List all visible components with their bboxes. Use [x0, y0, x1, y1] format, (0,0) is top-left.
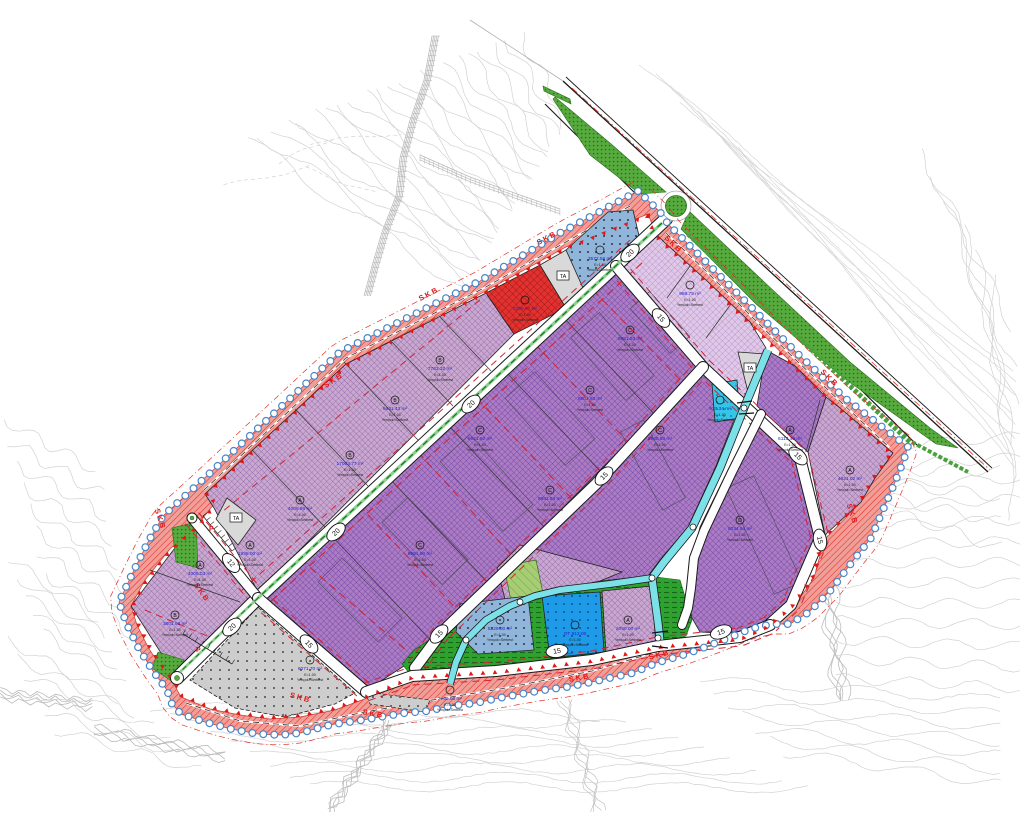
svg-text:E=1.00: E=1.00: [734, 533, 746, 537]
svg-text:2090.00 m²: 2090.00 m²: [616, 626, 641, 632]
svg-text:5948.50 m²: 5948.50 m²: [648, 436, 673, 442]
svg-text:TA: TA: [747, 366, 754, 372]
svg-text:E=1.00: E=1.00: [624, 343, 636, 347]
svg-text:9801.93 m²: 9801.93 m²: [578, 396, 603, 402]
svg-text:Yençok=Serbest: Yençok=Serbest: [647, 448, 673, 452]
svg-text:E=1.00: E=1.00: [474, 443, 486, 447]
svg-text:E=1.00: E=1.00: [244, 558, 256, 562]
svg-text:Yençok=Serbest: Yençok=Serbest: [382, 418, 408, 422]
svg-text:Yençok=Serbest: Yençok=Serbest: [512, 318, 538, 322]
svg-text:E=1.00: E=1.00: [494, 633, 506, 637]
svg-text:2259.00 m²: 2259.00 m²: [438, 696, 463, 702]
svg-text:E=1.00: E=1.00: [594, 263, 606, 267]
svg-text:988.75 m²: 988.75 m²: [679, 291, 701, 297]
svg-text:C: C: [478, 428, 482, 434]
svg-text:Yençok=Serbest: Yençok=Serbest: [617, 348, 643, 352]
svg-text:P: P: [196, 647, 201, 654]
svg-text:Yençok=Serbest: Yençok=Serbest: [237, 563, 263, 567]
svg-text:15: 15: [553, 648, 562, 656]
svg-text:Yençok=Serbest: Yençok=Serbest: [467, 448, 493, 452]
svg-text:C: C: [548, 488, 552, 494]
svg-text:Yençok=Serbest: Yençok=Serbest: [537, 508, 563, 512]
svg-text:Yençok=Serbest: Yençok=Serbest: [337, 473, 363, 477]
svg-text:6071.70 m²: 6071.70 m²: [298, 666, 323, 672]
svg-text:E=1.00: E=1.00: [389, 413, 401, 417]
svg-text:4005.03 m²: 4005.03 m²: [188, 571, 213, 577]
svg-text:3801.98 m²: 3801.98 m²: [163, 621, 188, 627]
svg-text:E=1.00: E=1.00: [294, 513, 306, 517]
svg-text:Yençok=Serbest: Yençok=Serbest: [587, 268, 613, 272]
svg-text:1938.00 m²: 1938.00 m²: [238, 551, 263, 557]
svg-text:8921.92 m²: 8921.92 m²: [468, 436, 493, 442]
svg-text:Yençok=Serbest: Yençok=Serbest: [707, 418, 733, 422]
svg-text:3572.56 m²: 3572.56 m²: [588, 256, 613, 262]
svg-text:Yençok=Serbest: Yençok=Serbest: [727, 538, 753, 542]
svg-text:Yençok=Serbest: Yençok=Serbest: [187, 583, 213, 587]
svg-text:Yençok=Serbest: Yençok=Serbest: [577, 408, 603, 412]
svg-text:Yençok=Serbest: Yençok=Serbest: [297, 678, 323, 682]
svg-text:E=1.00: E=1.00: [434, 373, 446, 377]
svg-text:D: D: [738, 518, 742, 524]
svg-text:C: C: [418, 543, 422, 549]
svg-text:8034.84 m²: 8034.84 m²: [728, 526, 753, 532]
svg-text:17083.77 m²: 17083.77 m²: [337, 461, 364, 467]
svg-text:4821.02 m²: 4821.02 m²: [838, 476, 863, 482]
svg-text:15: 15: [815, 536, 823, 545]
svg-text:E=1.00: E=1.00: [844, 483, 856, 487]
svg-text:OT 912.00: OT 912.00: [564, 631, 587, 637]
svg-text:E=1.00: E=1.00: [584, 403, 596, 407]
svg-text:Yençok=Serbest: Yençok=Serbest: [777, 448, 803, 452]
svg-text:Yençok=Serbest: Yençok=Serbest: [287, 518, 313, 522]
svg-text:E=1.00: E=1.00: [784, 443, 796, 447]
svg-text:9881.93 m²: 9881.93 m²: [538, 496, 563, 502]
svg-text:E=1.00: E=1.00: [304, 673, 316, 677]
svg-text:C: C: [588, 388, 592, 394]
svg-text:C: C: [628, 328, 632, 334]
svg-text:E=1.00: E=1.00: [654, 443, 666, 447]
svg-text:977.34 m²: 977.34 m²: [709, 406, 731, 412]
svg-text:6113.49 m²: 6113.49 m²: [778, 436, 802, 442]
svg-text:Yençok=Serbest: Yençok=Serbest: [487, 638, 513, 642]
svg-text:Yençok=Serbest: Yençok=Serbest: [677, 303, 703, 307]
svg-text:E=1.00: E=1.00: [714, 413, 726, 417]
svg-text:9851.93 m²: 9851.93 m²: [618, 336, 643, 342]
svg-text:6641.43 m²: 6641.43 m²: [383, 406, 408, 412]
svg-text:E=1.00: E=1.00: [622, 633, 634, 637]
svg-text:E=1.00: E=1.00: [444, 703, 456, 707]
svg-text:8951.80 m²: 8951.80 m²: [408, 551, 433, 557]
svg-text:P: P: [209, 526, 214, 533]
svg-text:5129.00 m²: 5129.00 m²: [488, 626, 513, 632]
svg-text:Yençok=Serbest: Yençok=Serbest: [407, 563, 433, 567]
svg-text:E=1.00: E=1.00: [344, 468, 356, 472]
svg-text:E=1.00: E=1.00: [544, 503, 556, 507]
svg-text:E=1.00: E=1.00: [684, 298, 696, 302]
svg-text:Yençok=Serbest: Yençok=Serbest: [437, 708, 463, 712]
svg-text:Yençok=Serbest: Yençok=Serbest: [427, 378, 453, 382]
svg-text:TA: TA: [233, 516, 240, 522]
svg-text:C: C: [658, 428, 662, 434]
svg-text:E=1.00: E=1.00: [169, 628, 181, 632]
svg-text:7269.00 m²: 7269.00 m²: [513, 306, 538, 312]
svg-text:Yençok=Serbest: Yençok=Serbest: [837, 488, 863, 492]
svg-text:4009.86 m²: 4009.86 m²: [288, 506, 313, 512]
svg-text:E=1.00: E=1.00: [519, 313, 531, 317]
svg-text:E=1.00: E=1.00: [414, 558, 426, 562]
svg-text:E=1.00: E=1.00: [569, 638, 581, 642]
svg-text:Yençok=Serbest: Yençok=Serbest: [615, 638, 641, 642]
svg-text:TA: TA: [560, 274, 567, 280]
svg-text:Yençok=Serbest: Yençok=Serbest: [562, 643, 588, 647]
svg-text:E=1.00: E=1.00: [194, 578, 206, 582]
svg-text:Yençok=Serbest: Yençok=Serbest: [162, 633, 188, 637]
svg-text:7763.32 m²: 7763.32 m²: [428, 366, 453, 372]
